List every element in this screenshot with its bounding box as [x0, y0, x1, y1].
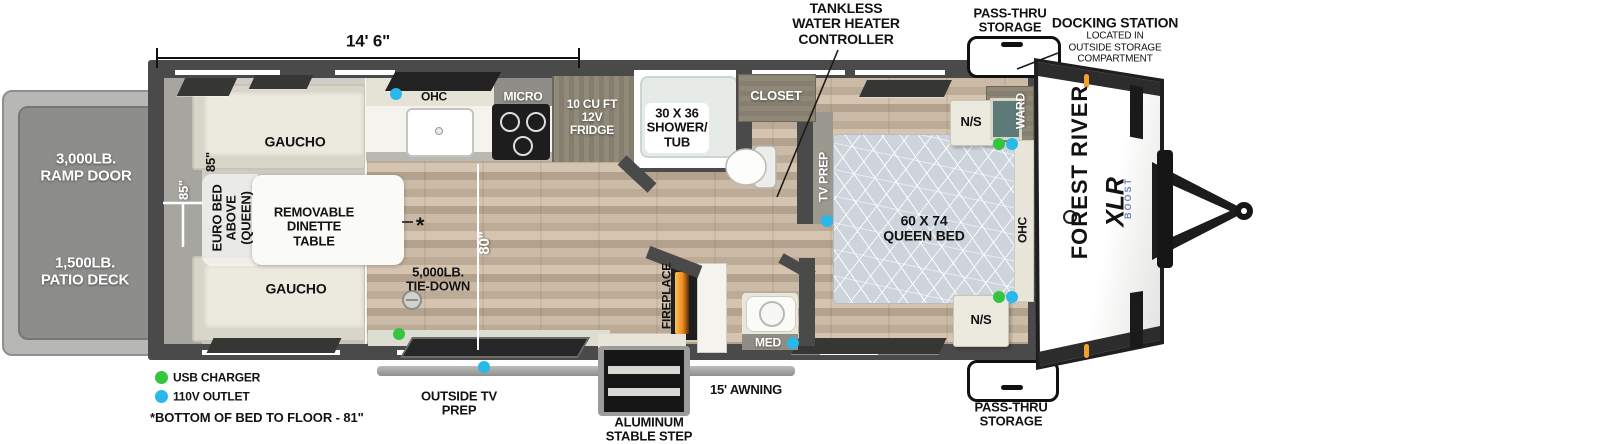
- fireplace-surround: [697, 263, 727, 353]
- legend-outlet-label: 110V OUTLET: [173, 390, 250, 403]
- queen-bed-label: 60 X 74 QUEEN BED: [883, 214, 964, 245]
- patio-deck-label: 1,500LB. PATIO DECK: [41, 256, 129, 289]
- sink-drain: [435, 127, 443, 135]
- ohc-bedroom-label: OHC: [1016, 217, 1029, 243]
- burner-icon: [513, 136, 533, 156]
- 110v-outlet-dot: [478, 361, 490, 373]
- tankless-l3: CONTROLLER: [792, 32, 900, 47]
- step-tread: [608, 366, 680, 374]
- range-hood: [385, 72, 501, 91]
- bedroom-rug: [859, 80, 952, 97]
- floorplan-canvas: 3,000LB. RAMP DOOR 1,500LB. PATIO DECK: [0, 0, 1600, 444]
- docking-l4: COMPARTMENT: [1052, 54, 1178, 66]
- docking-l3: OUTSIDE STORAGE: [1052, 42, 1178, 54]
- euro-bed-l2: ABOVE: [225, 184, 239, 251]
- gaucho-top-label: GAUCHO: [264, 134, 325, 149]
- bed-height-black-label: 85": [204, 152, 218, 172]
- outside-tv-l2: PREP: [421, 404, 497, 418]
- shower-label: 30 X 36 SHOWER/ TUB: [647, 107, 708, 150]
- tv-prep-wall: [797, 112, 813, 224]
- forest-river-logo: FOREST RIVER: [1068, 85, 1092, 260]
- 110v-outlet-dot: [787, 337, 799, 349]
- ramp-door-panel: [18, 106, 156, 340]
- clearance-light-icon: [1084, 344, 1089, 358]
- legend-usb-label: USB CHARGER: [173, 371, 260, 384]
- fridge-label: 10 CU FT 12V FRIDGE: [567, 98, 617, 138]
- boost-logo: BOOST: [1124, 177, 1134, 219]
- pass-thru-handle: [1001, 385, 1023, 390]
- shower-l2: SHOWER/: [647, 121, 708, 135]
- tankless-label: TANKLESS WATER HEATER CONTROLLER: [792, 1, 900, 47]
- front-cap-body: [1030, 54, 1170, 374]
- outside-tv-l1: OUTSIDE TV: [421, 390, 497, 404]
- step-label: ALUMINUM STABLE STEP: [606, 416, 692, 444]
- docking-l2: LOCATED IN: [1052, 31, 1178, 43]
- legend-outlet-dot: [155, 390, 168, 403]
- legend-usb-dot: [155, 371, 168, 384]
- usb-charger-dot: [993, 138, 1005, 150]
- micro-label: MICRO: [504, 90, 543, 103]
- bunk-slab: [249, 75, 314, 89]
- dinette-l3: TABLE: [274, 234, 354, 248]
- pass-thru-handle: [1001, 42, 1023, 47]
- dinette-label: REMOVABLE DINETTE TABLE: [274, 206, 354, 249]
- burner-icon: [500, 112, 520, 132]
- asterisk-marker: *: [416, 214, 424, 238]
- bath-wall-lower: [799, 258, 815, 346]
- fireplace-label: FIREPLACE: [660, 263, 673, 329]
- pass-thru-top-l1: PASS-THRU: [973, 7, 1046, 21]
- dinette-l2: DINETTE: [274, 220, 354, 234]
- queen-bed-l1: 60 X 74: [883, 214, 964, 229]
- outside-tv-panel: [400, 337, 590, 358]
- usb-charger-dot: [393, 328, 405, 340]
- bed-height-white-label: 85": [177, 180, 191, 200]
- garage-width-label: 80": [477, 231, 494, 254]
- step-l2: STABLE STEP: [606, 430, 692, 444]
- bunk-slab: [207, 338, 342, 353]
- fridge-l3: FRIDGE: [567, 125, 617, 138]
- tankless-l2: WATER HEATER: [792, 16, 900, 31]
- queen-bed-l2: QUEEN BED: [883, 229, 964, 244]
- ramp-door-l1: 3,000LB.: [40, 152, 131, 169]
- med-label: MED: [755, 336, 781, 349]
- tie-down-label: 5,000LB. TIE-DOWN: [406, 266, 470, 295]
- 110v-outlet-dot: [1006, 291, 1018, 303]
- footnote-label: *BOTTOM OF BED TO FLOOR - 81": [150, 411, 364, 425]
- tankless-l1: TANKLESS: [792, 1, 900, 16]
- tie-down-l2: TIE-DOWN: [406, 280, 470, 294]
- pass-thru-bottom-l1: PASS-THRU: [974, 401, 1047, 415]
- 110v-outlet-dot: [821, 215, 833, 227]
- step-l1: ALUMINUM: [606, 416, 692, 430]
- shower-l3: TUB: [647, 135, 708, 149]
- tv-prep-label: TV PREP: [817, 152, 830, 202]
- cap-accent-stripe: [1130, 291, 1143, 349]
- awning-rail: [377, 366, 795, 376]
- closet-label: CLOSET: [750, 89, 802, 103]
- 110v-outlet-dot: [1006, 138, 1018, 150]
- ns-top-label: N/S: [960, 115, 981, 129]
- docking-l1: DOCKING STATION: [1052, 15, 1178, 31]
- tie-down-l1: 5,000LB.: [406, 266, 470, 280]
- outside-tv-label: OUTSIDE TV PREP: [421, 390, 497, 419]
- ramp-door-l2: RAMP DOOR: [40, 168, 131, 185]
- pass-thru-top-label: PASS-THRU STORAGE: [973, 7, 1046, 36]
- gaucho-bottom-label: GAUCHO: [265, 281, 326, 296]
- dinette-l1: REMOVABLE: [274, 206, 354, 220]
- patio-deck-l1: 1,500LB.: [41, 256, 129, 273]
- pass-thru-bottom-label: PASS-THRU STORAGE: [974, 401, 1047, 430]
- pass-thru-bottom-l2: STORAGE: [974, 415, 1047, 429]
- entry-step: [604, 350, 684, 412]
- euro-bed-l3: (QUEEN): [239, 184, 253, 251]
- step-tread: [608, 388, 680, 396]
- ohc-kitchen-label: OHC: [421, 90, 447, 103]
- awning-label: 15' AWNING: [710, 383, 782, 397]
- usb-charger-dot: [993, 291, 1005, 303]
- 110v-outlet-dot: [390, 88, 402, 100]
- pass-thru-top-l2: STORAGE: [973, 21, 1046, 35]
- roof-vent-strip: [855, 70, 945, 75]
- shower-l1: 30 X 36: [647, 107, 708, 121]
- burner-icon: [526, 112, 546, 132]
- ns-bottom-label: N/S: [970, 313, 991, 327]
- ward-label: WARD: [1014, 93, 1027, 129]
- cap-accent-stripe: [1130, 85, 1143, 140]
- length-dimension-label: 14' 6": [346, 33, 390, 52]
- euro-bed-l1: EURO BED: [211, 184, 225, 251]
- ramp-door-label: 3,000LB. RAMP DOOR: [40, 152, 131, 185]
- docking-station-label: DOCKING STATION LOCATED IN OUTSIDE STORA…: [1052, 15, 1178, 66]
- med-sink-bowl: [759, 301, 785, 327]
- fireplace-flame: [675, 272, 689, 334]
- roof-vent-strip: [335, 70, 395, 75]
- front-cap: FOREST RIVER XLR BOOST: [1030, 54, 1170, 374]
- euro-bed-label: EURO BED ABOVE (QUEEN): [211, 184, 254, 251]
- patio-deck-l2: PATIO DECK: [41, 272, 129, 289]
- bunk-slab: [177, 78, 237, 96]
